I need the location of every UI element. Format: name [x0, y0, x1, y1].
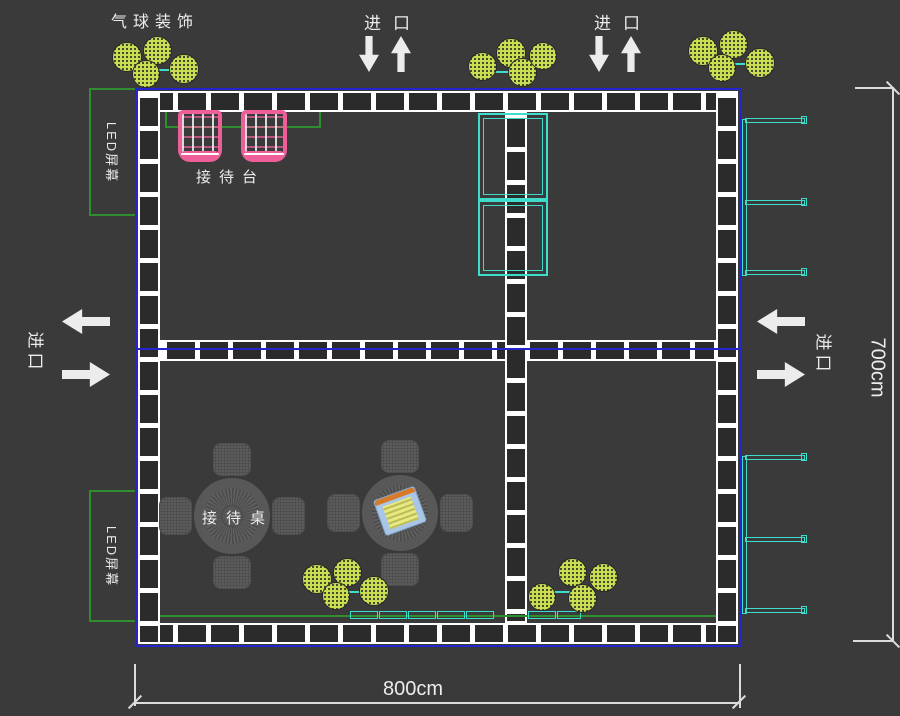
balloon-icon — [589, 563, 618, 592]
entrance-label-left: 进口 — [25, 332, 50, 374]
wall-shelf-top-right — [742, 118, 808, 277]
balloon-icon — [359, 576, 389, 606]
entrance-down-arrow-icon — [359, 36, 379, 72]
balloon-icon — [528, 583, 556, 611]
balloon-icon — [708, 54, 736, 82]
shelf-board — [745, 118, 805, 123]
balloon-icon — [169, 54, 199, 84]
floor-plan-canvas: 气球装饰 进口 进口 进口 进口 LED屏幕 LED屏幕 接待台 — [0, 0, 900, 716]
middle-divider-line — [135, 348, 742, 350]
led-screen-label: LED屏幕 — [104, 121, 123, 182]
balloon-cluster — [302, 558, 392, 616]
balloon-cluster — [688, 30, 778, 88]
balloon-icon — [568, 584, 597, 613]
width-dimension-label: 800cm — [383, 678, 443, 701]
wall-shelf-bottom-right — [742, 455, 808, 615]
entrance-right-arrow-icon — [62, 362, 110, 387]
low-cabinet — [437, 611, 465, 619]
shelf-board — [745, 455, 805, 460]
balloon-decoration-label: 气球装饰 — [111, 8, 199, 32]
entrance-left-arrow-icon — [62, 309, 110, 334]
balloon-icon — [468, 52, 497, 81]
led-screen-bottom: LED屏幕 — [89, 490, 137, 622]
balloon-icon — [132, 60, 160, 88]
entrance-label-top-1: 进口 — [364, 9, 422, 34]
balloon-icon — [558, 558, 587, 587]
shelf-upright — [742, 119, 747, 276]
balloon-icon — [745, 48, 775, 78]
balloon-icon — [322, 582, 350, 610]
entrance-up-arrow-icon — [621, 36, 641, 72]
shelf-board — [745, 270, 805, 275]
shelf-upright — [742, 456, 747, 614]
reception-desk — [241, 110, 287, 162]
shelf-board — [745, 608, 805, 613]
shelf-board — [745, 200, 805, 205]
shelf-board — [745, 537, 805, 542]
low-cabinet — [408, 611, 436, 619]
balloon-icon — [529, 42, 557, 70]
reception-desk-label: 接待台 — [196, 166, 265, 187]
reception-desk — [178, 110, 222, 162]
balloon-cluster — [468, 38, 558, 96]
balloon-cluster — [528, 558, 618, 616]
entrance-label-top-2: 进口 — [594, 9, 652, 34]
dimension-tick — [853, 640, 894, 642]
height-dimension-line — [892, 88, 894, 642]
entrance-up-arrow-icon — [391, 36, 411, 72]
reception-table-label: 接待桌 — [202, 507, 274, 528]
width-dimension-line — [135, 702, 741, 704]
center-cabinet-upper — [478, 113, 548, 200]
dimension-tick — [855, 87, 894, 89]
height-dimension-label: 700cm — [866, 337, 889, 397]
center-cabinet-lower — [478, 200, 548, 276]
entrance-left-arrow-icon — [757, 309, 805, 334]
entrance-right-arrow-icon — [757, 362, 805, 387]
low-cabinet — [466, 611, 494, 619]
balloon-cluster — [112, 36, 202, 94]
led-screen-top: LED屏幕 — [89, 88, 137, 216]
entrance-label-right: 进口 — [813, 334, 838, 376]
entrance-down-arrow-icon — [589, 36, 609, 72]
led-screen-label: LED屏幕 — [104, 525, 123, 586]
